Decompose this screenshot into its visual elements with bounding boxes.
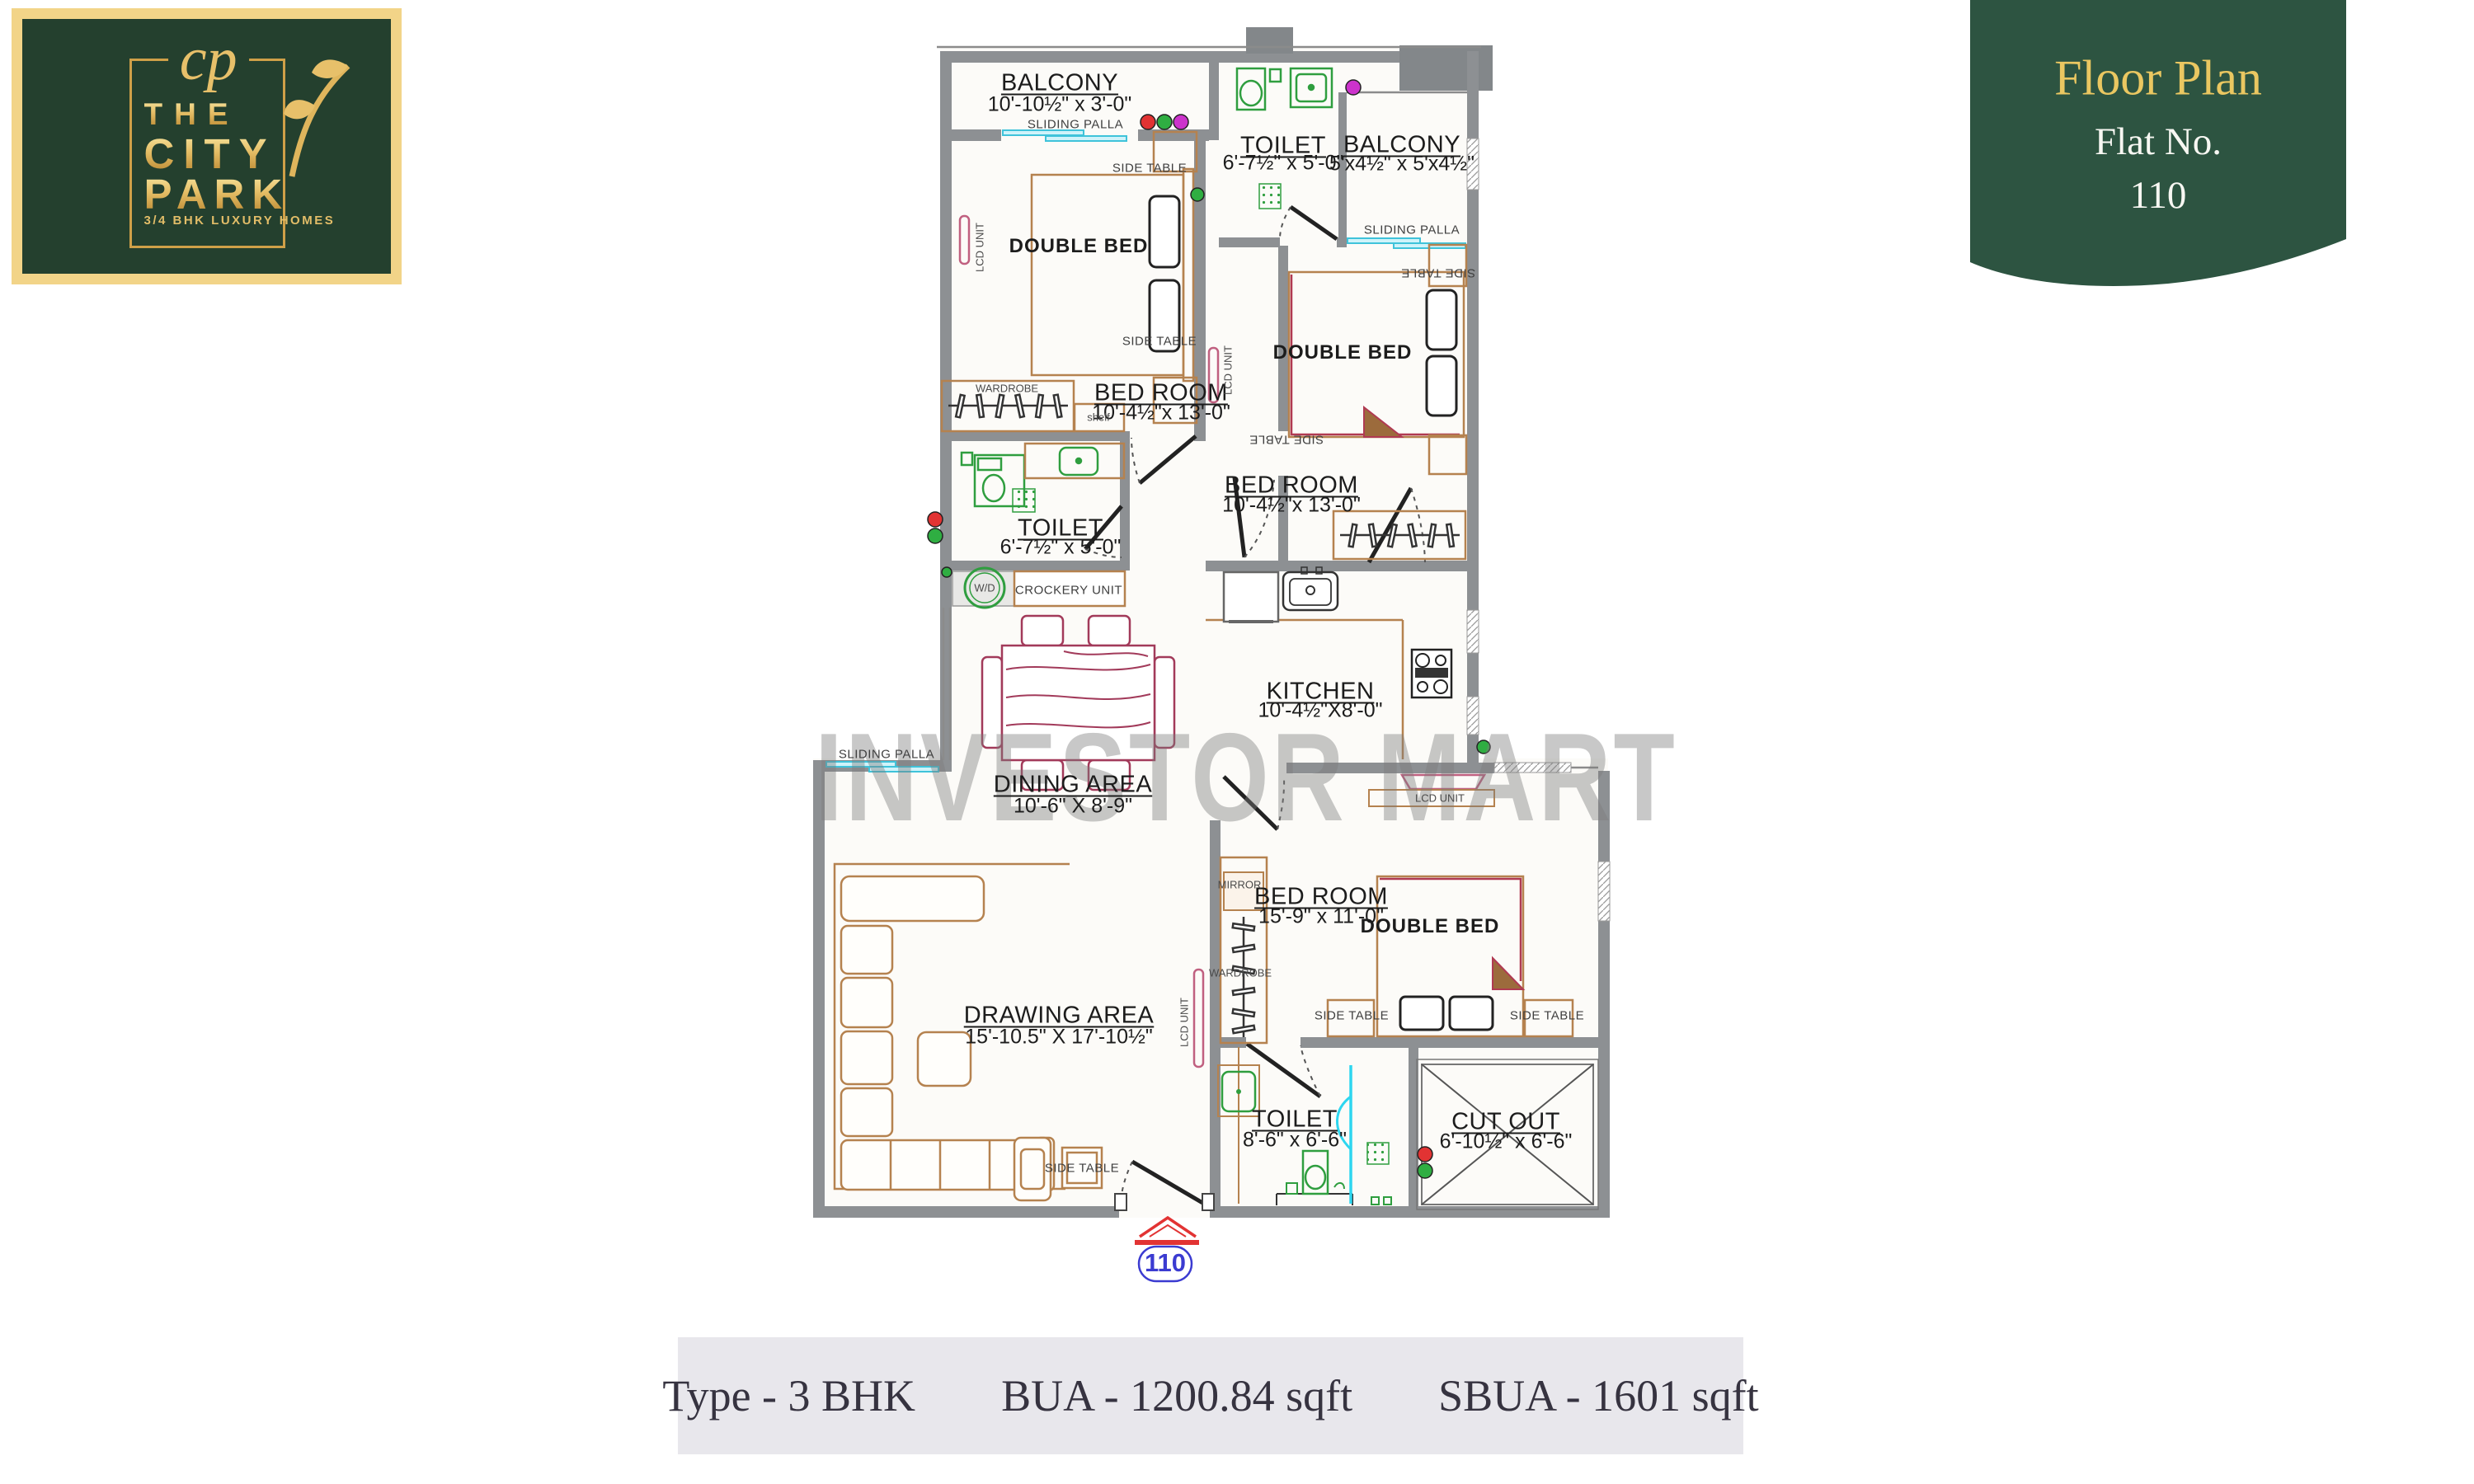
lcd-unit-label: LCD UNIT [1178, 998, 1191, 1047]
room-dims-toilet-top: 6'-7½" x 5'-0" [1223, 152, 1344, 176]
info-bua: BUA - 1200.84 sqft [958, 1370, 1395, 1421]
side-table-label: SIDE TABLE [1401, 266, 1475, 280]
washer-dryer-label: W/D [974, 582, 995, 594]
crockery-unit-label: CROCKERY UNIT [1015, 584, 1122, 598]
room-dims-balcony-top: 10'-10½" x 3'-0" [988, 93, 1132, 117]
lcd-unit-label: LCD UNIT [974, 223, 986, 272]
entrance-flat-number: 110 [1145, 1248, 1186, 1278]
room-dims-cutout: 6'-10½" x 6'-6" [1440, 1130, 1573, 1154]
wardrobe-label: WARDROBE [976, 383, 1038, 395]
double-bed-label: DOUBLE BED [1361, 915, 1500, 938]
room-dims-toilet-mid: 6'-7½" x 5'-0" [1000, 536, 1122, 560]
floor-plan-poster: cp THE CITY PARK 3/4 BHK LUXURY HOMES Fl… [0, 0, 2474, 1484]
room-dims-kitchen: 10'-4½"X8'-0" [1258, 699, 1383, 723]
side-table-label: SIDE TABLE [1122, 335, 1197, 349]
room-dims-bedroom-top: 10'-4½"x 13'-0" [1092, 402, 1230, 425]
room-dims-toilet-bottom: 8'-6" x 6'-6" [1243, 1129, 1347, 1153]
room-dims-bedroom-mid: 10'-4½"x 13'-0" [1222, 494, 1361, 518]
side-table-label: SIDE TABLE [1315, 1009, 1389, 1023]
info-bar: Type - 3 BHK BUA - 1200.84 sqft SBUA - 1… [678, 1337, 1743, 1454]
side-table-label: SIDE TABLE [1112, 162, 1187, 176]
room-dims-dining: 10'-6" X 8'-9" [1014, 795, 1132, 819]
room-dims-balcony-right: 5'x4½" x 5'x4½" [1329, 153, 1475, 176]
lcd-unit-label: LCD UNIT [1222, 345, 1235, 395]
info-type: Type - 3 BHK [619, 1370, 958, 1421]
lcd-unit-label: LCD UNIT [1415, 792, 1465, 805]
wardrobe-label: WARDROBE [1209, 967, 1272, 979]
double-bed-label: DOUBLE BED [1009, 235, 1149, 258]
info-sbua: SBUA - 1601 sqft [1395, 1370, 1802, 1421]
side-table-label: SIDE TABLE [1045, 1162, 1119, 1176]
floor-plan-drawing [0, 0, 2474, 1484]
sliding-palla-label: SLIDING PALLA [1364, 223, 1460, 237]
side-table-label: SIDE TABLE [1249, 433, 1324, 447]
shelf-label: shelf [1087, 411, 1109, 424]
room-dims-drawing: 15'-10.5" X 17'-10½" [965, 1026, 1152, 1050]
double-bed-label: DOUBLE BED [1273, 341, 1413, 364]
sliding-palla-label: SLIDING PALLA [839, 748, 934, 762]
sliding-palla-label: SLIDING PALLA [1028, 118, 1123, 132]
side-table-label: SIDE TABLE [1510, 1009, 1584, 1023]
mirror-label: MIRROR [1218, 879, 1262, 891]
